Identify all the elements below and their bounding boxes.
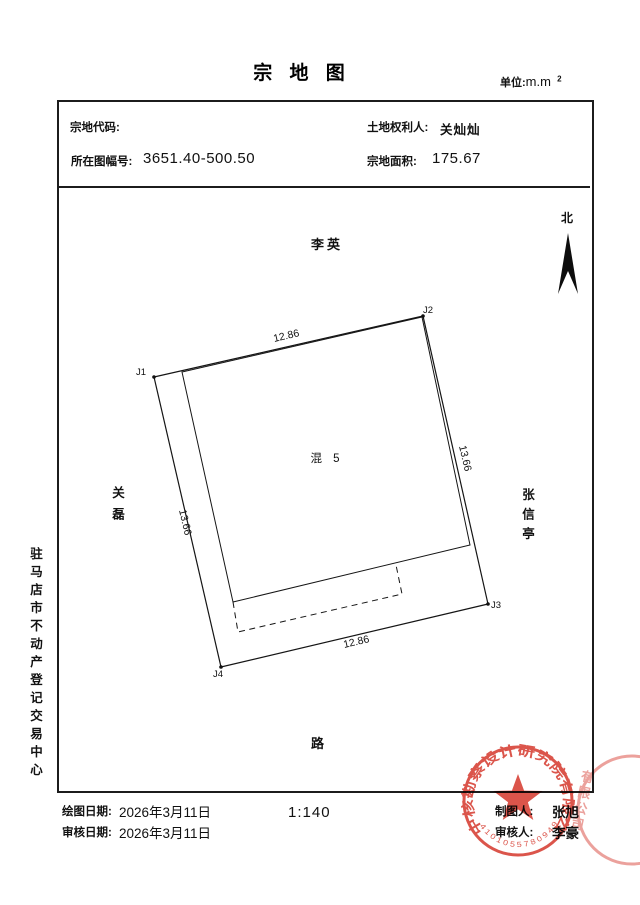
seal-ghost-impression: 有限公司 [567, 756, 640, 864]
dimension-top: 12.86 [272, 327, 300, 345]
draw-date-label: 绘图日期: [62, 803, 112, 819]
vertex-dot-j3 [486, 602, 490, 606]
vertex-dot-j1 [152, 375, 156, 379]
company-seal: 中核勘察设计研究院有限公司 4101055780949 有限公司 [440, 725, 640, 885]
dimension-left: 13.66 [176, 508, 194, 536]
annex-dashed-outline [233, 565, 402, 632]
review-date-value: 2026年3月11日 [119, 822, 211, 842]
vertex-label-j1: J1 [136, 367, 146, 378]
vertex-label-j3: J3 [491, 600, 501, 611]
parcel-map-document: 宗 地 图 单位:m.m 2 宗地代码: 土地权利人: 关灿灿 所在图幅号: 3… [0, 0, 640, 905]
parcel-boundary [154, 316, 488, 667]
dimension-right: 13.66 [456, 444, 474, 472]
building-structure-label: 混 5 [310, 452, 343, 465]
north-arrow-icon [558, 233, 578, 294]
dimension-bottom: 12.86 [342, 633, 370, 651]
draw-date-value: 2026年3月11日 [119, 801, 211, 821]
review-date-label: 审核日期: [62, 824, 112, 840]
vertex-label-j4: J4 [213, 669, 223, 680]
vertex-label-j2: J2 [423, 305, 433, 316]
seal-star-icon [493, 774, 542, 820]
map-scale: 1:140 [288, 804, 331, 821]
